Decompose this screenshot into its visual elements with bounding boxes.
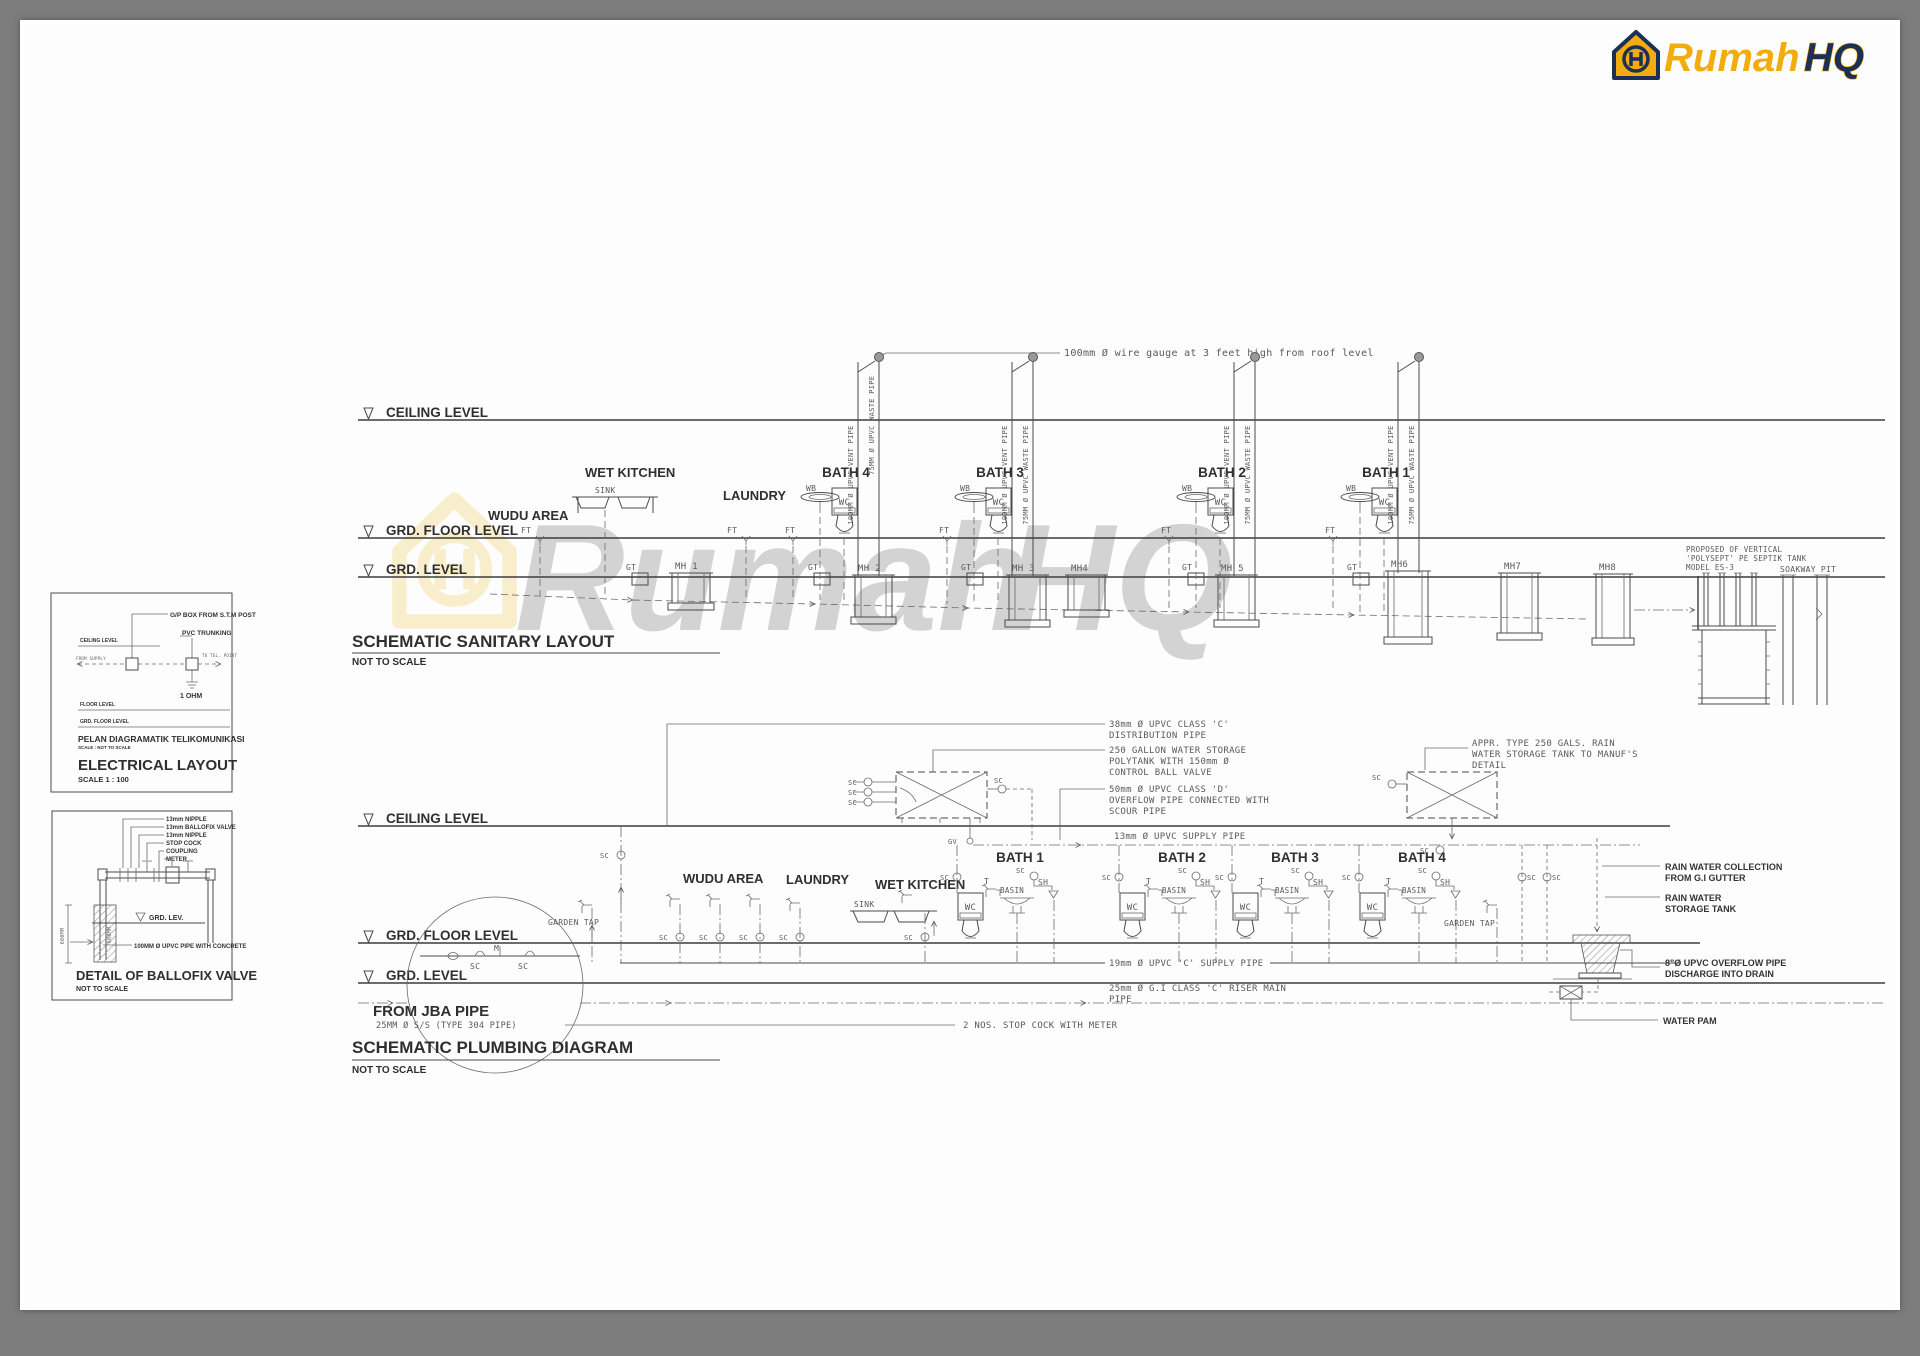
plb-bath-3: BATH 3 SC T BASIN SC SH (1215, 845, 1333, 963)
sanitary-title: SCHEMATIC SANITARY LAYOUT (352, 632, 615, 651)
san-floor-label: GRD. FLOOR LEVEL (386, 523, 518, 538)
rain-storage-label: STORAGE TANK (1665, 904, 1737, 914)
san-grd-label: GRD. LEVEL (386, 562, 467, 577)
dim-600mm: 600MM (60, 928, 66, 945)
stopcock-icon (864, 788, 872, 796)
ft-label: FT (1161, 526, 1171, 535)
plumbing-scale: NOT TO SCALE (352, 1065, 427, 1076)
overflow-note: OVERFLOW PIPE CONNECTED WITH (1109, 796, 1269, 806)
stopcock-icon (1388, 780, 1396, 788)
level-mark-icon (364, 931, 373, 942)
electrical-layout-scale: SCALE 1 : 100 (78, 775, 129, 784)
callout-nipple-1: 13mm NIPPLE (166, 817, 207, 823)
san-wetkitchen-label: WET KITCHEN (585, 465, 675, 480)
san-laundry-label: LAUNDRY (723, 488, 786, 503)
callout-meter: METER (166, 857, 188, 863)
basin-icon (1000, 898, 1034, 913)
laundry-plumbing: LAUNDRY SC (779, 872, 849, 963)
manhole-label: MH6 (1391, 560, 1408, 570)
sc-label: SC (739, 934, 748, 942)
shower-icon (1211, 891, 1220, 898)
riser-main-note: 25mm Ø G.I CLASS 'C' RISER MAIN (1109, 983, 1286, 994)
plb-laundry-label: LAUNDRY (786, 872, 849, 887)
polytank-note: CONTROL BALL VALVE (1109, 768, 1212, 778)
supply19-note: 19mm Ø UPVC 'C' SUPPLY PIPE (1109, 958, 1263, 969)
overflow-drain-label: DISCHARGE INTO DRAIN (1665, 969, 1774, 979)
garden-tap-right: GARDEN TAP SC SC (1444, 845, 1561, 963)
stopcock-icon (864, 798, 872, 806)
stopcock-icon (998, 785, 1006, 793)
level-mark-icon (364, 565, 373, 576)
sc-label: SC (1178, 867, 1187, 875)
toilet-icon (958, 893, 983, 938)
sc-label: SC (1016, 867, 1025, 875)
overflow-note: SCOUR PIPE (1109, 807, 1166, 817)
san-sink-label: SINK (595, 486, 615, 495)
bath-label: BATH 1 (996, 850, 1044, 865)
ballofix-title: DETAIL OF BALLOFIX VALVE (76, 968, 257, 983)
vent-pipe-label: 100MM Ø UPVC VENT PIPE (1223, 425, 1231, 524)
polytank-note: 250 GALLON WATER STORAGE (1109, 746, 1246, 756)
sc-label: SC (600, 852, 609, 860)
gp-box-label: G/P BOX FROM S.T.M POST (170, 612, 256, 619)
sc-label: SC (1102, 874, 1111, 882)
plb-bath-2: BATH 2 SC T BASIN SC SH (1102, 845, 1220, 963)
logo-word2: HQ (1804, 36, 1864, 80)
plb-sink-label: SINK (854, 900, 874, 909)
level-mark-icon (364, 814, 373, 825)
bath-label: BATH 4 (1398, 850, 1446, 865)
meter-label: M (494, 944, 499, 953)
callout-ballofix: 13mm BALLOFIX VALVE (166, 825, 236, 831)
wire-gauge-note: 100mm Ø wire gauge at 3 feet high from r… (1064, 347, 1374, 359)
elec-from-label: FROM SUPPLY (76, 656, 106, 661)
gv-label: GV (948, 838, 958, 846)
manhole-label: MH 3 (1012, 564, 1035, 574)
sc-label: SC (848, 799, 857, 807)
bath-label: BATH 3 (1271, 850, 1319, 865)
callout-coupling: COUPLING (166, 849, 198, 855)
rain-storage-label: RAIN WATER (1665, 893, 1722, 903)
gt-label: GT (1347, 563, 1357, 572)
ft-label: FT (939, 526, 949, 535)
sc-label: SC (779, 934, 788, 942)
sc-label: SC (1291, 867, 1300, 875)
from-jba-label: FROM JBA PIPE (373, 1003, 489, 1020)
sc-label: SC (848, 789, 857, 797)
basin-icon (1402, 898, 1436, 913)
electrical-layout-detail: G/P BOX FROM S.T.M POST PVC TRUNKING CEI… (51, 593, 256, 792)
sc-label: SC (1342, 874, 1351, 882)
rain-tank-note: APPR. TYPE 250 GALS. RAIN (1472, 739, 1615, 749)
dist-pipe-note: DISTRIBUTION PIPE (1109, 731, 1206, 741)
supply13-note: 13mm Ø UPVC SUPPLY PIPE (1114, 831, 1246, 842)
waste-pipe-label: 75MM Ø UPVC WASTE PIPE (868, 376, 876, 475)
tap-icon (786, 898, 800, 911)
grd-floor-level-label: GRD. FLOOR LEVEL (80, 719, 129, 725)
polytank-note: POLYTANK WITH 150mm Ø (1109, 756, 1229, 767)
level-mark-icon (364, 971, 373, 982)
sc-label: SC (699, 934, 708, 942)
overflow-drain-label: 8"Ø UPVC OVERFLOW PIPE (1665, 958, 1786, 968)
wb-label: WB (806, 484, 816, 493)
septic-note: MODEL ES-3 (1686, 563, 1734, 572)
toilet-icon (1233, 893, 1258, 938)
rain-tank-note: WATER STORAGE TANK TO MANUF'S (1472, 750, 1638, 760)
stopcock-icon (1030, 872, 1038, 880)
water-pump-label: WATER PAM (1663, 1016, 1717, 1026)
rain-collect-label: FROM G.I GUTTER (1665, 873, 1746, 883)
plb-bath-4: BATH 4 SC T BASIN SC SH (1342, 845, 1460, 963)
water-storage-tank: SC SC SC SC GV (848, 772, 1032, 846)
plb-wetkitchen-label: WET KITCHEN (875, 877, 965, 892)
ohm-label: 1 OHM (180, 693, 202, 700)
logo-word1: Rumah (1664, 36, 1800, 80)
sc-label: SC (1418, 867, 1427, 875)
stopcock-icon (864, 778, 872, 786)
plb-grd-label: GRD. LEVEL (386, 968, 467, 983)
wb-label: WB (1182, 484, 1192, 493)
plb-wudu-label: WUDU AREA (683, 871, 764, 886)
plb-ceiling-label: CEILING LEVEL (386, 811, 488, 826)
rumahhq-logo: Rumah HQ (1608, 28, 1888, 89)
sc-label: SC (470, 962, 480, 971)
sc-label: SC (940, 874, 949, 882)
floor-level-label: FLOOR LEVEL (80, 702, 115, 708)
waste-pipe-label: 75MM Ø UPVC WASTE PIPE (1408, 425, 1416, 524)
manhole-label: MH8 (1599, 563, 1616, 573)
shower-icon (1451, 891, 1460, 898)
tap-icon (706, 894, 720, 907)
sanitary-scale: NOT TO SCALE (352, 657, 427, 668)
manhole: MH8 (1592, 563, 1634, 645)
rain-storage-tank-roof: APPR. TYPE 250 GALS. RAIN WATER STORAGE … (1372, 739, 1638, 855)
vent-pipe-label: 100MM Ø UPVC VENT PIPE (847, 425, 855, 524)
callout-stopcock: STOP COCK (166, 841, 202, 847)
pvc-trunking-label: PVC TRUNKING (182, 630, 231, 637)
shower-icon (1049, 891, 1058, 898)
electrical-layout-title: ELECTRICAL LAYOUT (78, 757, 237, 774)
stopcock-meter-note: 2 NOS. STOP COCK WITH METER (963, 1021, 1118, 1031)
drawing-sheet: WC Rumah HQ G/P BOX FROM S.T.M POST PVC … (20, 20, 1900, 1310)
shower-label: SH (1038, 878, 1048, 887)
septic-note: 'POLYSEPT' PE SEPTIK TANK (1686, 554, 1807, 563)
manhole-label: MH 5 (1221, 564, 1244, 574)
dim-600mm-inner: 600MM (107, 927, 113, 944)
ballofix-detail: 13mm NIPPLE 13mm BALLOFIX VALVE 13mm NIP… (52, 811, 257, 1000)
stopcock-icon (1432, 872, 1440, 880)
dist-pipe-note: 38mm Ø UPVC CLASS 'C' (1109, 719, 1229, 730)
manhole-label: MH 2 (858, 564, 881, 574)
sc-label: SC (848, 779, 857, 787)
basin-label: BASIN (1000, 886, 1024, 895)
garden-tap-label: GARDEN TAP (1444, 919, 1495, 928)
manhole-label: MH4 (1071, 564, 1088, 574)
ft-label: FT (785, 526, 795, 535)
basin-label: BASIN (1402, 886, 1426, 895)
sc-label: SC (904, 934, 913, 942)
vent-pipe-label: 100MM Ø UPVC VENT PIPE (1001, 425, 1009, 524)
wb-label: WB (960, 484, 970, 493)
wudu-area-plumbing: WUDU AREA SC SC SC (659, 871, 764, 963)
bath-label: BATH 2 (1158, 850, 1206, 865)
wb-label: WB (1346, 484, 1356, 493)
shower-label: SH (1200, 878, 1210, 887)
ft-label: FT (1325, 526, 1335, 535)
ballofix-scale: NOT TO SCALE (76, 986, 128, 993)
tap-icon (578, 900, 592, 913)
tap-icon (1483, 900, 1497, 913)
gt-label: GT (808, 563, 818, 572)
tap-icon (746, 894, 760, 907)
elec-to-label: TO TEL. POINT (202, 653, 237, 658)
bath-label: BATH 2 (1198, 465, 1246, 480)
septic-note: PROPOSED OF VERTICAL (1686, 545, 1782, 554)
shower-label: SH (1313, 878, 1323, 887)
rain-collect-label: RAIN WATER COLLECTION (1665, 862, 1782, 872)
manhole: MH7 (1497, 562, 1542, 640)
manhole-label: MH7 (1504, 562, 1521, 572)
rain-tank-note: DETAIL (1472, 761, 1506, 771)
vent-pipe-label: 100MM Ø UPVC VENT PIPE (1387, 425, 1395, 524)
wet-kitchen-plumbing: WET KITCHEN SINK SC (850, 877, 965, 963)
jba-spec-label: 25MM Ø S/S (TYPE 304 PIPE) (376, 1020, 517, 1031)
level-mark-icon (364, 526, 373, 537)
shower-label: SH (1440, 878, 1450, 887)
basin-icon (1162, 898, 1196, 913)
garden-tap-label: GARDEN TAP (548, 918, 599, 927)
telecom-plan-title: PELAN DIAGRAMATIK TELIKOMUNIKASI (78, 734, 245, 744)
ballofix-grd-lev-label: GRD. LEV. (149, 915, 183, 922)
sc-label: SC (1552, 874, 1561, 882)
ft-label: FT (727, 526, 737, 535)
gt-label: GT (626, 563, 636, 572)
toilet-icon (1120, 893, 1145, 938)
sc-label: SC (994, 777, 1003, 785)
ft-label: FT (521, 526, 531, 535)
schematic-drawing: WC Rumah HQ G/P BOX FROM S.T.M POST PVC … (20, 20, 1900, 1310)
gt-label: GT (961, 563, 971, 572)
plumbing-title: SCHEMATIC PLUMBING DIAGRAM (352, 1038, 633, 1057)
manhole-label: MH 1 (675, 562, 698, 572)
level-mark-icon (364, 408, 373, 419)
elec-ceiling-label: CEILING LEVEL (80, 638, 118, 644)
stopcock-icon (1305, 872, 1313, 880)
soakway-pit: SOAKWAY PIT (1780, 565, 1836, 705)
overflow-note: 50mm Ø UPVC CLASS 'D' (1109, 784, 1229, 795)
san-ceiling-label: CEILING LEVEL (386, 405, 488, 420)
upvc-concrete-note: 100MM Ø UPVC PIPE WITH CONCRETE (134, 944, 246, 950)
basin-label: BASIN (1275, 886, 1299, 895)
sc-label: SC (1527, 874, 1536, 882)
sc-label: SC (1215, 874, 1224, 882)
tap-icon (666, 894, 680, 907)
callout-nipple-2: 13mm NIPPLE (166, 833, 207, 839)
san-wudu-label: WUDU AREA (488, 508, 569, 523)
stopcock-icon (1192, 872, 1200, 880)
logo-house-icon (1614, 32, 1658, 78)
riser-main-note: PIPE (1109, 995, 1132, 1005)
sc-label: SC (518, 962, 528, 971)
basin-icon (1275, 898, 1309, 913)
shower-icon (1324, 891, 1333, 898)
bath-group-1: BATH 1 WB FT 100MM Ø UPVC VENT PIPE 75MM… (1325, 353, 1424, 613)
rain-water-system: RAIN WATER COLLECTION FROM G.I GUTTER RA… (1547, 838, 1786, 1026)
sc-label: SC (1372, 774, 1381, 782)
plb-floor-label: GRD. FLOOR LEVEL (386, 928, 518, 943)
telecom-plan-scale: SCALE : NOT TO SCALE (78, 745, 131, 750)
waste-pipe-label: 75MM Ø UPVC WASTE PIPE (1244, 425, 1252, 524)
waste-pipe-label: 75MM Ø UPVC WASTE PIPE (1022, 425, 1030, 524)
plumbing-diagram: CEILING LEVEL GRD. FLOOR LEVEL GRD. LEVE… (352, 719, 1885, 1076)
gt-label: GT (1182, 563, 1192, 572)
wash-basin-icon (1341, 493, 1379, 507)
plb-bath-1: BATH 1 SC T BASIN SC SH (940, 845, 1058, 963)
sc-label: SC (659, 934, 668, 942)
manhole: MH6 (1384, 560, 1432, 644)
toilet-icon (1360, 893, 1385, 938)
basin-label: BASIN (1162, 886, 1186, 895)
watermark-word2: HQ (1005, 493, 1233, 663)
soakway-label: SOAKWAY PIT (1780, 565, 1836, 574)
